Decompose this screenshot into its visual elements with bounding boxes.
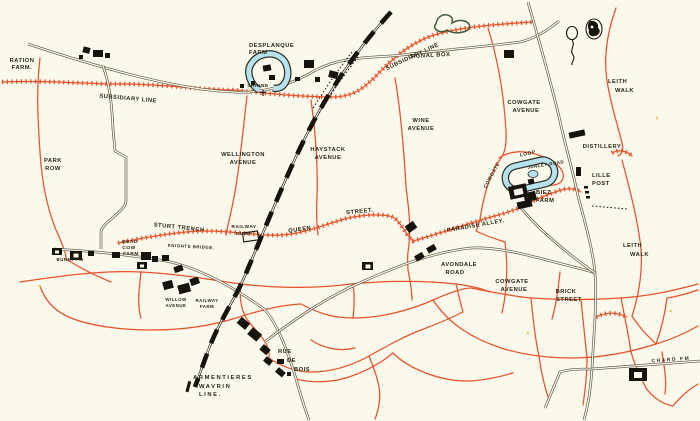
label-burnt-farm: BURNT FM (57, 257, 84, 262)
svg-text:WALK: WALK (630, 252, 649, 258)
lille-post-building (576, 167, 581, 176)
svg-text:DE: DE (287, 358, 296, 364)
svg-text:COW: COW (122, 245, 135, 251)
svg-text:RATION: RATION (10, 58, 35, 64)
svg-text:WILLOW: WILLOW (165, 297, 187, 302)
signal-box-building (504, 50, 514, 58)
biez-pond (528, 171, 538, 178)
svg-text:DEAD: DEAD (122, 239, 138, 245)
svg-text:LEITH: LEITH (623, 243, 642, 249)
svg-text:AVENUE: AVENUE (166, 303, 187, 308)
svg-text:FARM: FARM (123, 251, 139, 257)
label-willow-avenue: WILLOW AVENUE (165, 297, 187, 308)
svg-text:COWGATE: COWGATE (495, 279, 528, 285)
svg-text:ROW: ROW (45, 166, 61, 172)
map-canvas: RATION FARM. SUBSIDIARY LINE SUBSIDIARY … (0, 0, 700, 421)
svg-text:FARM: FARM (249, 50, 267, 56)
svg-text:STREET: STREET (556, 297, 582, 303)
svg-text:FARM.: FARM. (12, 65, 33, 71)
svg-text:LINE.: LINE. (199, 392, 222, 398)
svg-text:WELLINGTON: WELLINGTON (221, 152, 265, 158)
svg-text:AVENUE: AVENUE (513, 108, 540, 114)
svg-text:HAYSTACK: HAYSTACK (310, 147, 346, 153)
svg-text:ROAD: ROAD (445, 270, 464, 276)
svg-text:BIEZ: BIEZ (536, 190, 551, 196)
svg-text:AVONDALE: AVONDALE (441, 262, 477, 268)
svg-text:POST: POST (592, 181, 610, 187)
svg-text:LILLE: LILLE (592, 173, 611, 179)
svg-text:AVENUE: AVENUE (230, 160, 257, 166)
trench-map: RATION FARM. SUBSIDIARY LINE SUBSIDIARY … (0, 0, 700, 421)
label-shrine: SHRINE (247, 83, 269, 89)
svg-text:DUMP: DUMP (236, 231, 253, 237)
label-ration-farm: RATION FARM. (10, 58, 35, 71)
svg-text:PARK: PARK (44, 158, 62, 164)
svg-text:RUE: RUE (278, 349, 292, 355)
svg-text:AVENUE: AVENUE (315, 155, 342, 161)
svg-text:DESPLANQUE: DESPLANQUE (249, 43, 294, 49)
label-distillery: DISTILLERY (583, 144, 622, 150)
svg-text:RAILWAY: RAILWAY (195, 298, 218, 303)
svg-text:WAVRIN: WAVRIN (199, 384, 231, 390)
svg-text:WINE: WINE (412, 118, 429, 124)
svg-text:WALK: WALK (615, 88, 634, 94)
svg-text:LEITH: LEITH (608, 79, 627, 85)
svg-text:AVENUE: AVENUE (501, 287, 528, 293)
svg-text:RAILWAY: RAILWAY (231, 224, 257, 230)
svg-text:FARM: FARM (200, 304, 214, 309)
svg-text:COWGATE: COWGATE (507, 100, 540, 106)
svg-text:ARMENTIERES: ARMENTIERES (193, 375, 253, 381)
svg-text:FARM: FARM (536, 198, 554, 204)
svg-text:BOIS: BOIS (294, 367, 310, 373)
svg-text:BRICK: BRICK (556, 289, 577, 295)
svg-text:AVENUE: AVENUE (408, 126, 435, 132)
